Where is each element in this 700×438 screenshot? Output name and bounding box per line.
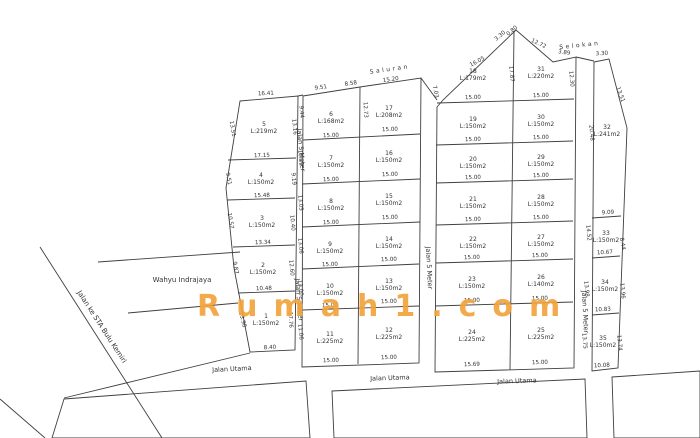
dimension-label: 15.20 xyxy=(383,76,400,84)
dimension-label: 12.30 xyxy=(567,71,574,88)
plot-divider-line xyxy=(40,247,162,438)
plot-area: L:140m2 xyxy=(528,281,555,288)
plot-area: L:150m2 xyxy=(460,203,487,210)
dimension-label: 13.96 xyxy=(618,283,625,300)
dimension-label: 13.34 xyxy=(255,240,272,247)
plot-15-label: 15L:150m2 xyxy=(376,193,403,207)
plot-17-label: 17L:208m2 xyxy=(376,105,403,119)
dimension-label: 10.57 xyxy=(226,212,235,229)
plot-16-label: 16L:150m2 xyxy=(376,150,403,164)
plot-number: 24 xyxy=(468,329,476,336)
plot-number: 19 xyxy=(469,116,477,123)
dimension-label: 15.00 xyxy=(323,220,340,227)
dimension-label: 15.00 xyxy=(533,135,550,142)
dimension-label: 15.00 xyxy=(465,217,482,224)
plot-34-label: 34L:150m2 xyxy=(592,279,619,293)
dimension-label: 9.51 xyxy=(224,172,232,186)
plot-number: 11 xyxy=(326,331,334,338)
dimension-label: 15.00 xyxy=(323,177,340,184)
dimension-label: 15.00 xyxy=(382,172,399,179)
plot-5-label: 5L:219m2 xyxy=(251,121,278,135)
plot-divider-line xyxy=(302,264,419,269)
plot-area: L:225m2 xyxy=(376,334,403,341)
plot-area: L:150m2 xyxy=(376,200,403,207)
plot-divider-line xyxy=(436,141,573,145)
plot-number: 9 xyxy=(328,241,332,248)
dimension-label: 13.51 xyxy=(228,120,237,137)
dimension-label: 9.19 xyxy=(289,172,296,185)
plot-20-label: 20L:150m2 xyxy=(460,156,487,170)
plot-number: 29 xyxy=(537,154,545,161)
dimension-label: 17.15 xyxy=(254,153,271,160)
dimension-label: 7.03 xyxy=(431,85,440,99)
dimension-label: 15.69 xyxy=(464,362,481,369)
dimension-label: 13.05 xyxy=(296,195,303,212)
road-label: Jalan Utama xyxy=(496,376,537,385)
plot-number: 6 xyxy=(329,111,333,118)
dimension-label: 8.58 xyxy=(344,80,358,88)
plot-area: L:150m2 xyxy=(590,342,617,349)
plot-area: L:150m2 xyxy=(460,123,487,130)
plot-area: L:225m2 xyxy=(317,338,344,345)
plot-26-label: 26L:140m2 xyxy=(528,274,555,288)
plot-area: L:150m2 xyxy=(318,205,345,212)
dimension-label: 20.48 xyxy=(587,125,594,142)
plot-33-label: 33L:150m2 xyxy=(593,230,620,244)
block-outline xyxy=(332,379,587,438)
plot-divider-line xyxy=(0,399,45,438)
dimension-label: 15.48 xyxy=(254,193,271,200)
dimension-label: 15.00 xyxy=(322,262,339,269)
plot-23-label: 23L:150m2 xyxy=(459,276,486,290)
dimension-label: 12.60 xyxy=(287,260,294,277)
plot-number: 14 xyxy=(385,236,393,243)
dimension-label: 15.00 xyxy=(465,175,482,182)
plot-18-label: 18L:179m2 xyxy=(460,68,487,82)
plot-area: L:150m2 xyxy=(376,243,403,250)
dimension-label: 15.00 xyxy=(533,93,550,100)
dimension-label: 3.30 xyxy=(596,51,609,58)
plot-area: L:150m2 xyxy=(250,269,277,276)
road-label: Jalan 5 Meter xyxy=(580,289,590,334)
dimension-label: 10.67 xyxy=(597,250,614,257)
plot-number: 17 xyxy=(385,105,393,112)
plot-area: L:179m2 xyxy=(460,75,487,82)
plot-area: L:150m2 xyxy=(318,162,345,169)
block-outline xyxy=(612,371,700,438)
plot-4-label: 4L:150m2 xyxy=(248,172,275,186)
plot-divider-line xyxy=(302,179,420,184)
dimension-label: 12.72 xyxy=(530,38,547,50)
plot-divider-line xyxy=(298,95,303,96)
plan-drawing: 1L:150m22L:150m23L:150m24L:150m25L:219m2… xyxy=(0,0,700,438)
watermark: Rumah1.com xyxy=(197,289,576,324)
plot-divider-line xyxy=(302,222,420,227)
dimension-label: 14.52 xyxy=(584,225,591,241)
dimension-label: 9.09 xyxy=(602,210,615,217)
plot-32-label: 32L:241m2 xyxy=(594,124,621,138)
dimension-label: 17.87 xyxy=(507,66,514,83)
plot-area: L:208m2 xyxy=(376,112,403,119)
dimension-label: 15.00 xyxy=(465,137,482,144)
dimension-label: 11.06 xyxy=(296,324,303,341)
plot-6-label: 6L:168m2 xyxy=(318,111,345,125)
plot-area: L:150m2 xyxy=(376,157,403,164)
plot-area: L:241m2 xyxy=(594,131,621,138)
plot-area: L:220m2 xyxy=(528,73,555,80)
dimension-label: 13.51 xyxy=(614,86,625,104)
dimension-label: 15.00 xyxy=(381,257,398,264)
dimension-label: 15.00 xyxy=(533,215,550,222)
plot-area: L:150m2 xyxy=(593,237,620,244)
plot-number: 20 xyxy=(469,156,477,163)
plot-divider-line xyxy=(437,99,574,103)
plot-number: 23 xyxy=(468,276,476,283)
dimension-label: 10.40 xyxy=(288,215,295,232)
dimension-label: 10.08 xyxy=(594,363,611,370)
dimension-label: 10.83 xyxy=(595,307,612,314)
plot-number: 13 xyxy=(385,278,393,285)
plot-number: 5 xyxy=(262,121,266,128)
plot-number: 34 xyxy=(601,279,609,286)
dimension-label: 13.74 xyxy=(615,335,622,352)
plot-divider-line xyxy=(436,221,573,225)
dimension-label: 15.00 xyxy=(382,215,399,222)
plot-area: L:225m2 xyxy=(459,336,486,343)
plot-19-label: 19L:150m2 xyxy=(460,116,487,130)
plot-2-label: 2L:150m2 xyxy=(250,262,277,276)
plot-area: L:150m2 xyxy=(460,243,487,250)
dimension-label: 15.00 xyxy=(381,355,398,362)
plot-divider-line xyxy=(303,134,420,140)
plot-area: L:168m2 xyxy=(318,118,345,125)
dimension-label: 15.00 xyxy=(532,360,549,367)
plot-12-label: 12L:225m2 xyxy=(376,327,403,341)
dimension-label: 15.00 xyxy=(323,358,340,365)
plot-area: L:150m2 xyxy=(248,179,275,186)
plot-22-label: 22L:150m2 xyxy=(460,236,487,250)
plot-area: L:225m2 xyxy=(528,334,555,341)
dimension-label: 12.73 xyxy=(362,102,369,119)
road-label: Jalan Utama xyxy=(211,364,252,374)
plot-number: 26 xyxy=(537,274,545,281)
plot-number: 18 xyxy=(469,68,477,75)
road-label: Jalan 5 Meter xyxy=(424,245,434,290)
dimension-label: 15.00 xyxy=(464,255,481,262)
plot-number: 12 xyxy=(385,327,393,334)
plot-9-label: 9L:150m2 xyxy=(317,241,344,255)
dimension-label: 15.00 xyxy=(323,133,340,140)
plot-area: L:150m2 xyxy=(528,201,555,208)
dimension-label: 15.00 xyxy=(533,173,550,180)
plot-number: 15 xyxy=(385,193,393,200)
dimension-label: 13.06 xyxy=(296,238,303,255)
plot-28-label: 28L:150m2 xyxy=(528,194,555,208)
dimension-label: 9.44 xyxy=(297,105,304,118)
plot-14-label: 14L:150m2 xyxy=(376,236,403,250)
plot-number: 27 xyxy=(537,234,545,241)
plot-number: 4 xyxy=(259,172,263,179)
plot-number: 31 xyxy=(537,66,545,73)
plot-area: L:150m2 xyxy=(528,121,555,128)
plot-area: L:219m2 xyxy=(251,128,278,135)
dimension-label: 15.00 xyxy=(465,95,482,102)
plot-number: 2 xyxy=(261,262,265,269)
plot-area: L:150m2 xyxy=(528,241,555,248)
plot-27-label: 27L:150m2 xyxy=(528,234,555,248)
plot-number: 25 xyxy=(537,327,545,334)
plot-number: 22 xyxy=(469,236,477,243)
plot-number: 32 xyxy=(603,124,611,131)
plot-8-label: 8L:150m2 xyxy=(318,198,345,212)
plot-area: L:150m2 xyxy=(592,286,619,293)
road-label: Jalan Utama xyxy=(369,373,410,382)
plot-35-label: 35L:150m2 xyxy=(590,335,617,349)
dimension-label: 15.00 xyxy=(382,127,399,134)
annotation-label: Wahyu Indrajaya xyxy=(153,276,212,284)
plot-divider-line xyxy=(436,259,573,263)
plot-number: 3 xyxy=(260,215,264,222)
plot-area: L:150m2 xyxy=(528,161,555,168)
plot-31-label: 31L:220m2 xyxy=(528,66,555,80)
dimension-label: 9.87 xyxy=(231,261,239,275)
plot-number: 21 xyxy=(469,196,477,203)
block-outline xyxy=(52,381,310,438)
plot-area: L:150m2 xyxy=(249,222,276,229)
plot-number: 28 xyxy=(537,194,545,201)
site-plan-canvas: 1L:150m22L:150m23L:150m24L:150m25L:219m2… xyxy=(0,0,700,438)
plot-divider-line xyxy=(98,252,240,262)
plot-number: 33 xyxy=(602,230,610,237)
plot-24-label: 24L:225m2 xyxy=(459,329,486,343)
dimension-label: 8.40 xyxy=(264,345,277,351)
plot-25-label: 25L:225m2 xyxy=(528,327,555,341)
plot-number: 16 xyxy=(385,150,393,157)
dimension-label: 8.44 xyxy=(618,237,626,251)
dimension-label: 13.75 xyxy=(580,333,587,350)
dimension-label: 9.51 xyxy=(314,84,328,92)
dimension-label: 15.00 xyxy=(532,253,549,260)
plot-7-label: 7L:150m2 xyxy=(318,155,345,169)
plot-divider-line xyxy=(576,57,594,61)
plot-21-label: 21L:150m2 xyxy=(460,196,487,210)
plot-30-label: 30L:150m2 xyxy=(528,114,555,128)
plot-number: 35 xyxy=(599,335,607,342)
dimension-label: 16.41 xyxy=(258,91,275,98)
plot-number: 30 xyxy=(537,114,545,121)
annotation-label: Selokan xyxy=(559,40,601,51)
plot-divider-line xyxy=(592,216,621,218)
plot-11-label: 11L:225m2 xyxy=(317,331,344,345)
plot-number: 8 xyxy=(329,198,333,205)
plot-29-label: 29L:150m2 xyxy=(528,154,555,168)
plot-area: L:150m2 xyxy=(460,163,487,170)
annotation-label: Jalan ke STA Bulu Kemiri xyxy=(75,288,128,364)
plot-divider-line xyxy=(64,353,250,398)
plot-divider-line xyxy=(436,179,573,183)
plot-number: 7 xyxy=(329,155,333,162)
plot-area: L:150m2 xyxy=(317,248,344,255)
annotation-label: Saluran xyxy=(369,63,410,76)
plot-3-label: 3L:150m2 xyxy=(249,215,276,229)
